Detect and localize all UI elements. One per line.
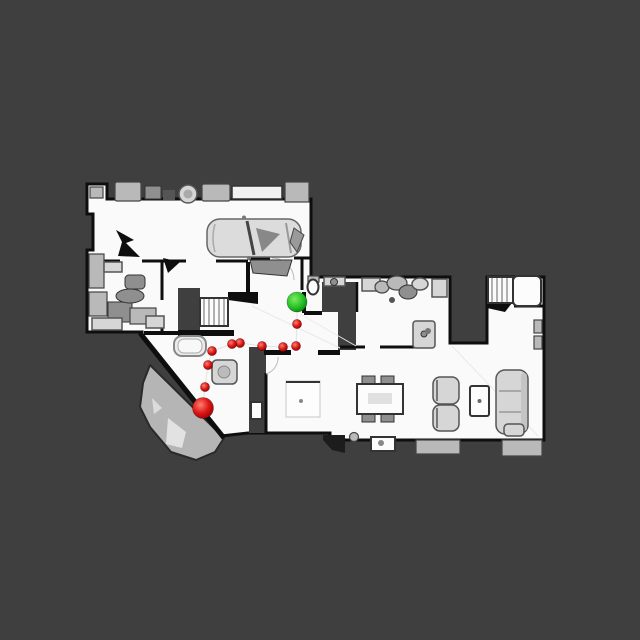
clutter (92, 318, 122, 330)
radiator (251, 402, 262, 419)
wall-band (318, 350, 340, 355)
sofa (496, 370, 528, 436)
storage-box (285, 182, 309, 202)
wall-fixture (534, 320, 542, 333)
storage-box (90, 187, 103, 198)
scan-void (178, 288, 200, 332)
clutter (412, 278, 428, 290)
rug-detail (299, 399, 303, 403)
storage-box (115, 182, 141, 201)
waypoint-sphere (278, 342, 287, 351)
stairs-upper (488, 276, 541, 306)
stairs-lower (200, 298, 228, 326)
rug (286, 381, 320, 417)
chair (381, 414, 394, 422)
clutter (89, 292, 107, 316)
scan-void (249, 347, 266, 433)
pot (389, 297, 395, 303)
storage-box (145, 186, 161, 199)
porch-planter (502, 440, 542, 456)
landing (513, 276, 541, 306)
sink (331, 279, 338, 286)
bathtub-inner (178, 339, 202, 353)
workbench (250, 260, 292, 276)
coffee-table-detail (478, 399, 482, 403)
shelf (89, 254, 104, 288)
scene-canvas[interactable] (0, 0, 640, 640)
floor-object (425, 328, 431, 334)
storage-box (163, 190, 175, 200)
car (207, 216, 304, 261)
waypoint-sphere (291, 341, 300, 350)
porch-planter (416, 440, 460, 454)
clutter (104, 262, 122, 272)
waypoint-sphere (227, 339, 236, 348)
chair (381, 376, 394, 384)
waypoint-sphere (203, 360, 212, 369)
chair (362, 376, 375, 384)
waypoint-sphere (257, 341, 266, 350)
toilet (308, 280, 319, 295)
shower-drain (218, 366, 230, 378)
waypoint-sphere (207, 346, 216, 355)
water-heater-top (184, 190, 193, 199)
wall-band (264, 350, 291, 355)
clutter (146, 316, 164, 328)
shelf (232, 186, 282, 199)
chaise (504, 424, 524, 436)
floor-object (350, 433, 359, 442)
wall-fixture (534, 336, 542, 349)
goal-sphere-green (287, 292, 307, 312)
waypoint-sphere (292, 319, 301, 328)
scene-viewport[interactable] (0, 0, 640, 640)
motorcycle (116, 289, 144, 303)
storage-box (202, 184, 230, 201)
floor-vent-detail (378, 440, 384, 446)
start-sphere-red (193, 398, 214, 419)
appliance (432, 279, 447, 297)
chair (362, 414, 375, 422)
waypoint-sphere (200, 382, 209, 391)
table-marking (368, 393, 392, 404)
armchairs (433, 377, 459, 431)
clutter (125, 275, 145, 289)
